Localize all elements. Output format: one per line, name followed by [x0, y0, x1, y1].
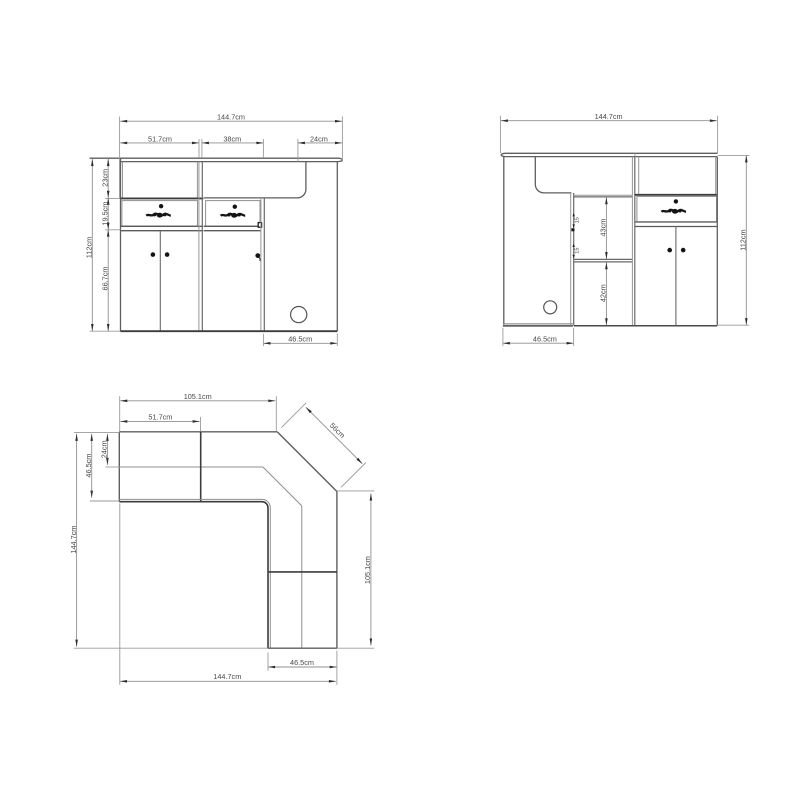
svg-text:15: 15 — [575, 217, 581, 223]
svg-text:105.1cm: 105.1cm — [184, 392, 212, 401]
svg-text:144.7cm: 144.7cm — [213, 672, 241, 681]
svg-text:51.7cm: 51.7cm — [148, 413, 172, 422]
svg-text:15: 15 — [575, 247, 581, 253]
svg-text:19.5cm: 19.5cm — [101, 202, 110, 226]
svg-text:105.1cm: 105.1cm — [363, 556, 372, 584]
svg-text:43cm: 43cm — [599, 219, 608, 237]
svg-text:46.5cm: 46.5cm — [290, 658, 314, 667]
svg-text:144.7cm: 144.7cm — [217, 113, 245, 122]
svg-text:46.5cm: 46.5cm — [84, 454, 93, 478]
svg-text:42cm: 42cm — [599, 284, 608, 302]
svg-text:112cm: 112cm — [85, 237, 94, 258]
svg-text:24cm: 24cm — [310, 134, 328, 143]
svg-text:51.7cm: 51.7cm — [148, 134, 172, 143]
svg-text:46.5cm: 46.5cm — [533, 334, 557, 343]
svg-text:144.7cm: 144.7cm — [69, 526, 78, 554]
svg-text:144.7cm: 144.7cm — [595, 112, 623, 121]
svg-text:24cm: 24cm — [100, 440, 109, 458]
svg-text:46.5cm: 46.5cm — [288, 334, 312, 343]
svg-text:23cm: 23cm — [101, 169, 110, 187]
svg-text:66.7cm: 66.7cm — [101, 267, 110, 291]
svg-text:112cm: 112cm — [739, 229, 748, 250]
svg-text:38cm: 38cm — [223, 134, 241, 143]
